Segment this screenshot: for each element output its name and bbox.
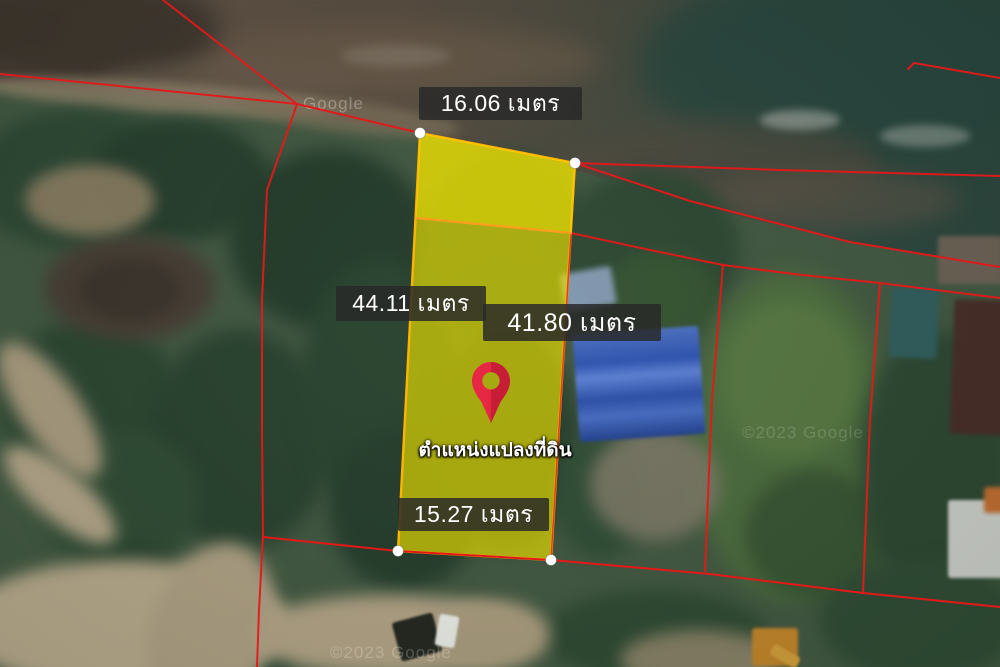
right-length-label: 41.80 เมตร xyxy=(483,304,661,341)
top-length-label: 16.06 เมตร xyxy=(419,87,582,120)
parcel-vertex xyxy=(570,158,581,169)
parcel-vertex xyxy=(546,555,557,566)
boundary-line xyxy=(705,265,723,571)
boundary-line xyxy=(257,104,297,667)
parcel-top-strip xyxy=(416,133,575,233)
bottom-length-label: 15.27 เมตร xyxy=(398,498,549,531)
boundary-line xyxy=(571,233,1000,298)
boundary-line xyxy=(575,163,1000,176)
boundary-line xyxy=(163,0,297,104)
boundary-line xyxy=(0,74,297,104)
location-pin-icon xyxy=(471,361,511,425)
boundary-line-bottom xyxy=(263,537,1000,607)
parcel-vertex xyxy=(393,546,404,557)
left-length-label: 44.11 เมตร xyxy=(336,286,486,321)
satellite-map-canvas: Google ©2023 Google ©2023 Google xyxy=(0,0,1000,667)
boundary-line xyxy=(863,283,880,592)
boundary-line xyxy=(908,63,1000,78)
parcel-caption: ตำแหน่งแปลงที่ดิน xyxy=(404,435,586,465)
riverbank-boundary-line xyxy=(575,163,1000,267)
parcel-vertex xyxy=(415,128,426,139)
